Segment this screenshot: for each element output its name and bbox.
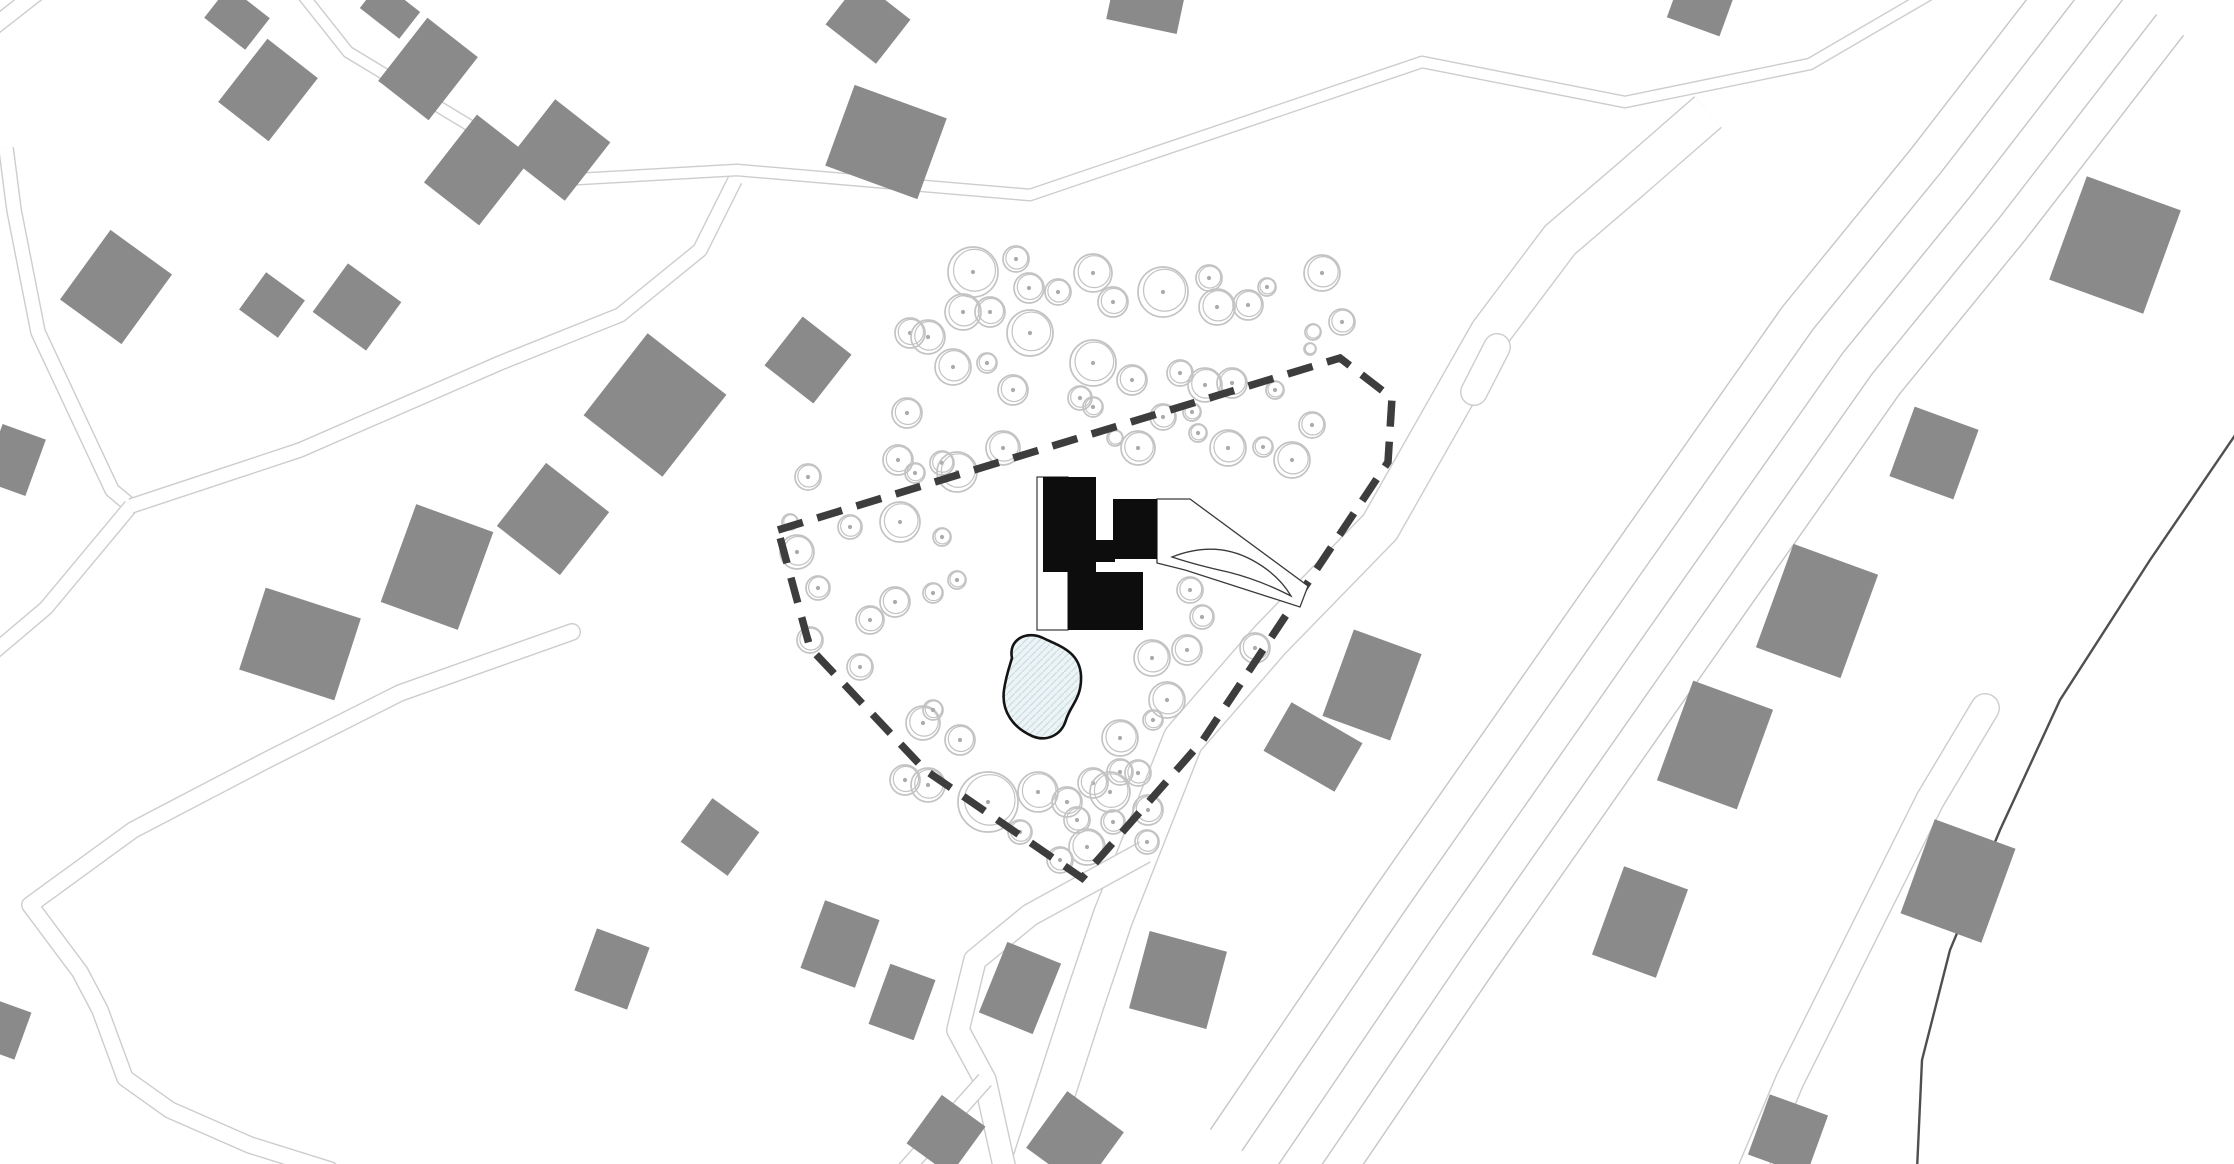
proposed-building-block [1068, 572, 1143, 630]
site-plan-map [0, 0, 2234, 1164]
site-plan-page [0, 0, 2234, 1164]
proposed-building-block [1043, 477, 1096, 572]
proposed-building-block [1113, 499, 1157, 559]
proposed-building-block [1093, 540, 1115, 562]
